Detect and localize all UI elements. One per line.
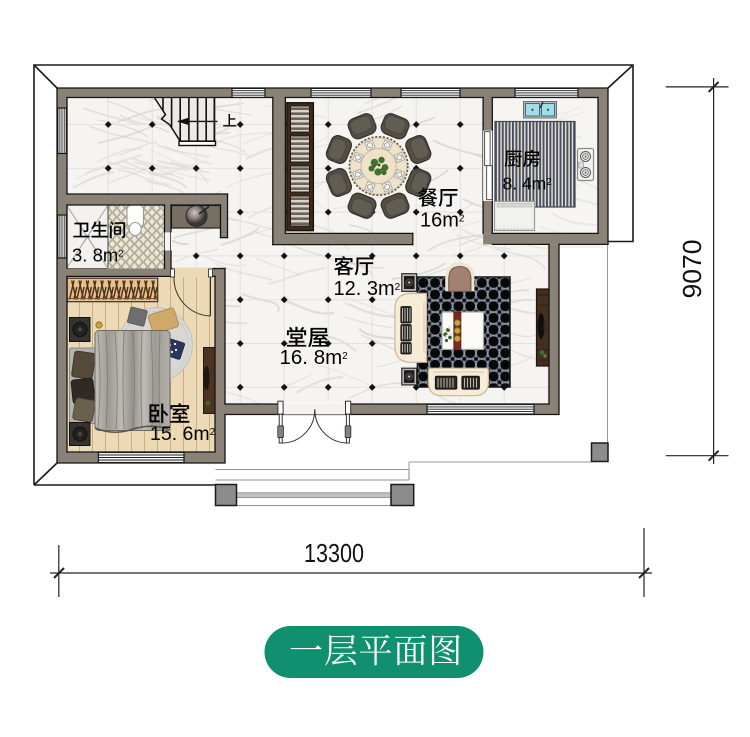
svg-text:15. 6m2: 15. 6m2	[150, 423, 216, 445]
svg-text:12. 3m2: 12. 3m2	[334, 278, 401, 300]
svg-text:13300: 13300	[304, 538, 364, 568]
svg-text:9070: 9070	[677, 240, 707, 299]
svg-text:3. 8m2: 3. 8m2	[72, 245, 124, 266]
svg-text:8. 4m2: 8. 4m2	[503, 174, 553, 194]
svg-text:16. 8m2: 16. 8m2	[280, 346, 349, 369]
svg-text:16m2: 16m2	[420, 210, 465, 232]
